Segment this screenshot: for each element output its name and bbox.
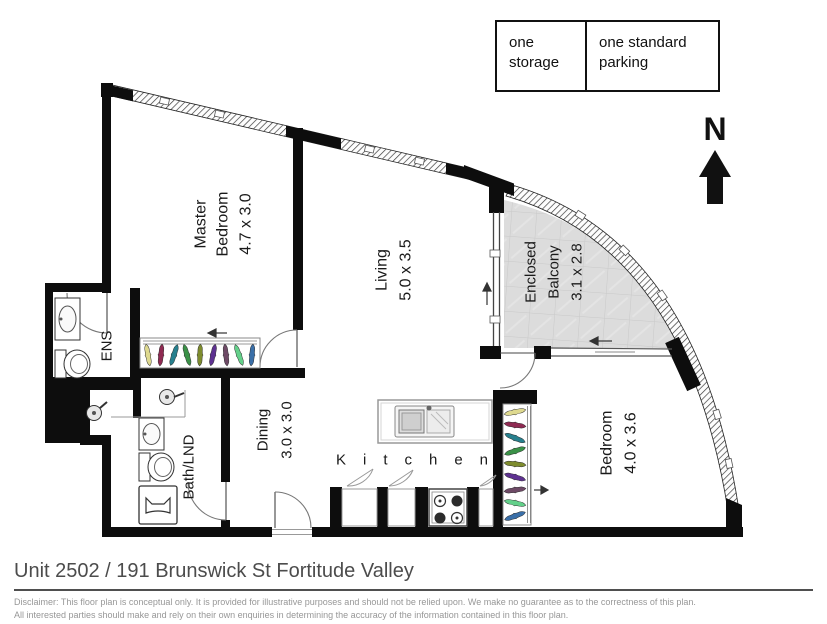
cabinet-door-arcs xyxy=(347,469,496,486)
north-arrow-icon xyxy=(699,150,731,177)
label-enclosed-balcony: Balcony xyxy=(546,245,563,299)
disclaimer-line-1: Disclaimer: This floor plan is conceptua… xyxy=(14,596,819,609)
bath-toilet-icon xyxy=(139,453,174,481)
label-master-bedroom: Bedroom xyxy=(215,192,232,257)
label-bedroom: Bedroom xyxy=(599,411,616,476)
compass-north-arrow: N xyxy=(699,111,731,204)
label-bedroom-dims: 4.0 x 3.6 xyxy=(623,412,640,473)
disclaimer-line-2: All interested parties should make and r… xyxy=(14,609,819,622)
label-kitchen: Kitchen xyxy=(336,452,488,469)
footer-divider xyxy=(14,589,813,591)
label-master-bedroom: Master xyxy=(193,199,210,249)
bedroom-door xyxy=(500,353,535,388)
cooktop-icon xyxy=(429,489,467,526)
label-living-dims: 5.0 x 3.5 xyxy=(398,239,415,300)
label-enclosed-balcony: Enclosed xyxy=(523,241,540,303)
label-dining: Dining xyxy=(255,409,272,452)
label-enclosed-balcony-dims: 3.1 x 2.8 xyxy=(569,243,586,301)
storage-cell: one storage xyxy=(497,22,587,90)
label-master-bedroom-dims: 4.7 x 3.0 xyxy=(238,193,255,254)
disclaimer-text: Disclaimer: This floor plan is conceptua… xyxy=(14,596,819,621)
bath-shower-head-icon xyxy=(160,390,185,405)
label-bath-laundry: Bath/LND xyxy=(181,434,198,499)
master-bedroom-door xyxy=(260,330,297,367)
master-wardrobe xyxy=(140,338,260,368)
label-dining-dims: 3.0 x 3.0 xyxy=(279,401,296,459)
ens-toilet-icon xyxy=(55,350,90,378)
sink-icon xyxy=(395,406,454,438)
label-ensuite: ENS xyxy=(99,331,116,362)
ens-basin-icon xyxy=(55,298,80,340)
address-title: Unit 2502 / 191 Brunswick St Fortitude V… xyxy=(14,560,414,583)
bedroom-wardrobe xyxy=(503,404,531,525)
floor-plan-page: Master Bedroom 4.7 x 3.0 Living 5.0 x 3.… xyxy=(0,0,827,624)
north-label: N xyxy=(703,111,726,147)
label-living: Living xyxy=(374,249,391,291)
amenities-table: one storage one standard parking xyxy=(495,20,720,92)
bath-basin-icon xyxy=(139,418,164,450)
washing-machine-icon xyxy=(139,486,177,524)
parking-cell: one standard parking xyxy=(587,22,718,90)
entry-door xyxy=(275,492,311,528)
